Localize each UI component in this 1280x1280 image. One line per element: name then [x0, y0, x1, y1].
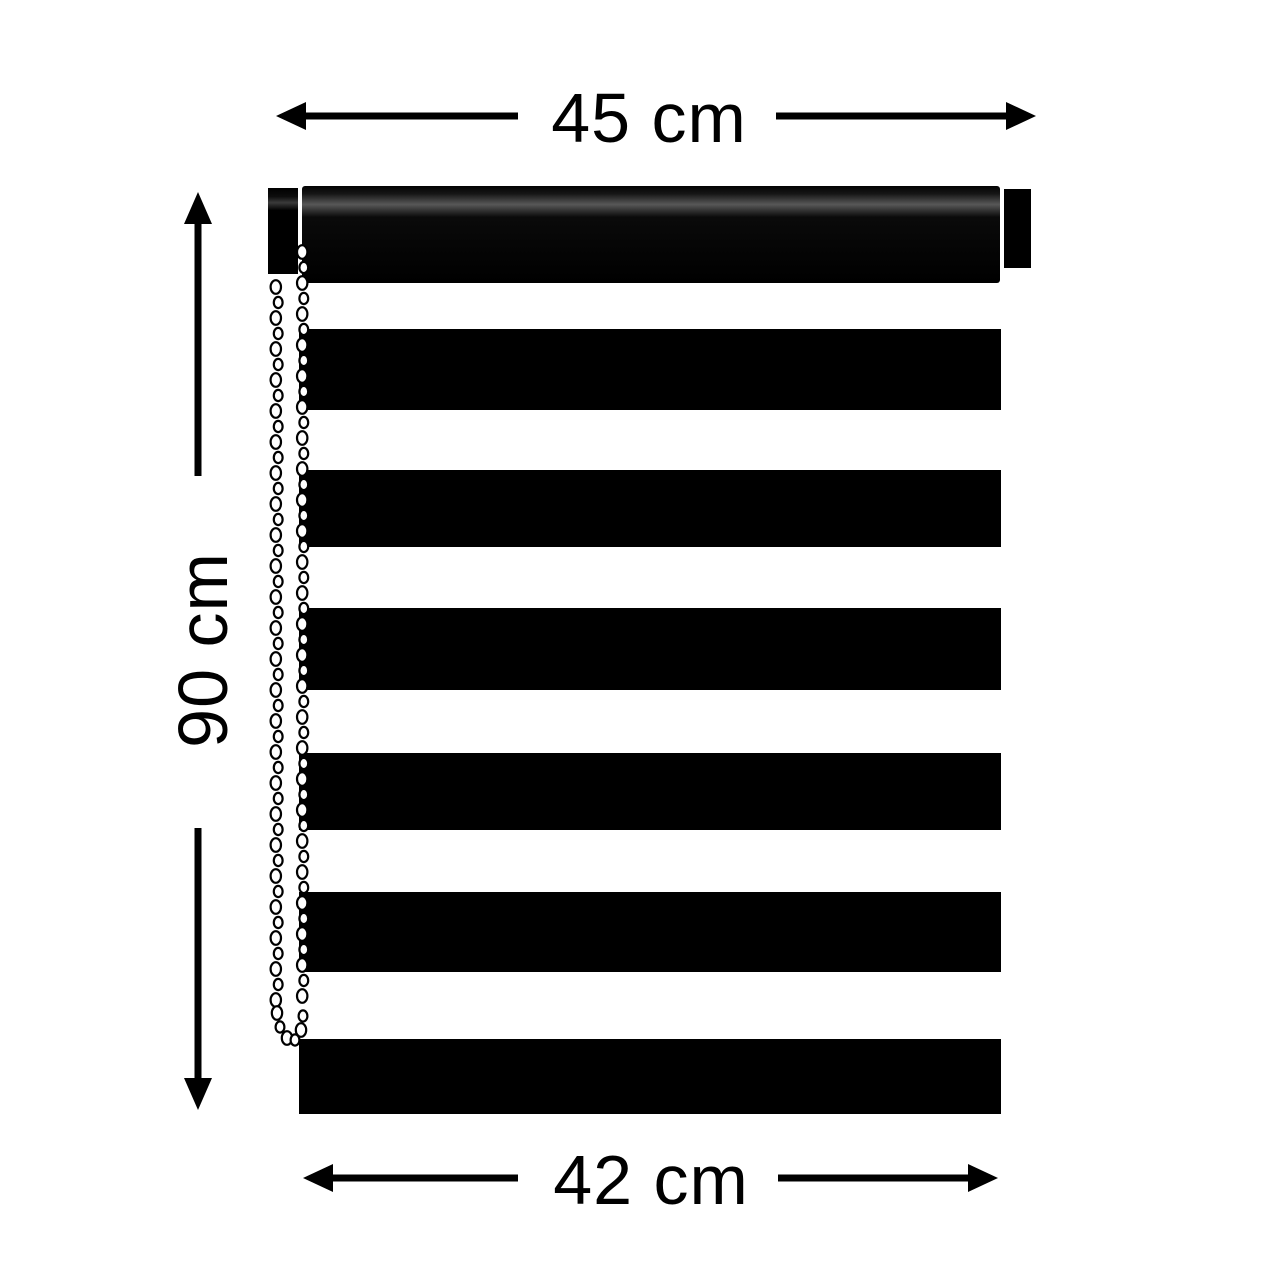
chain-bead	[274, 421, 283, 432]
chain-bead	[274, 979, 283, 990]
fabric-stripe	[299, 1039, 1001, 1114]
chain-bead	[299, 1010, 308, 1021]
chain-bead	[297, 400, 307, 414]
chain-bead	[299, 882, 308, 893]
chain-bead	[271, 404, 281, 418]
chain-bead	[297, 524, 307, 538]
fabric-stripe	[299, 892, 1001, 972]
chain-bead	[299, 975, 308, 986]
chain-bead	[271, 528, 281, 542]
chain-bead	[274, 917, 283, 928]
chain-bead	[297, 710, 307, 724]
chain-bead	[299, 944, 308, 955]
chain-bead	[271, 559, 281, 573]
side-height-dimension: 90 cm	[164, 192, 242, 1110]
chain-bead	[274, 297, 283, 308]
arrowhead-right-icon	[968, 1164, 998, 1192]
chain-bead	[299, 355, 308, 366]
left-mount-bracket	[268, 188, 298, 274]
chain-bead	[271, 435, 281, 449]
chain-bead	[274, 545, 283, 556]
chain-bead	[297, 493, 307, 507]
chain-bead	[299, 789, 308, 800]
chain-bead	[297, 834, 307, 848]
roller-blind-figure: 45 cm 90 cm 42 cm	[0, 0, 1280, 1280]
chain-bead	[274, 762, 283, 773]
product-dimension-diagram: 45 cm 90 cm 42 cm	[0, 0, 1280, 1280]
chain-bead	[297, 989, 307, 1003]
chain-bead	[299, 448, 308, 459]
chain-bead	[297, 927, 307, 941]
chain-bead	[274, 483, 283, 494]
chain-bead	[274, 359, 283, 370]
chain-bead	[297, 276, 307, 290]
chain-bead	[271, 466, 281, 480]
chain-bead	[271, 652, 281, 666]
chain-bead	[299, 665, 308, 676]
chain-bead	[271, 962, 281, 976]
chain-bead	[271, 497, 281, 511]
chain-bead	[274, 700, 283, 711]
chain-bead	[271, 838, 281, 852]
chain-bead	[297, 772, 307, 786]
chain-bead	[299, 634, 308, 645]
chain-bead	[274, 731, 283, 742]
chain-bead	[274, 328, 283, 339]
chain-bead	[297, 369, 307, 383]
chain-bead	[297, 338, 307, 352]
top-width-label: 45 cm	[551, 79, 747, 157]
chain-bead	[297, 555, 307, 569]
chain-bead	[274, 886, 283, 897]
roller-blind-headrail	[268, 186, 1031, 283]
chain-bead	[271, 900, 281, 914]
chain-bead	[274, 824, 283, 835]
bottom-width-label: 42 cm	[553, 1141, 749, 1219]
top-width-dimension: 45 cm	[276, 79, 1036, 157]
chain-bead	[299, 510, 308, 521]
chain-bead	[297, 462, 307, 476]
arrowhead-up-icon	[184, 192, 212, 224]
chain-bead	[271, 807, 281, 821]
chain-bead	[274, 576, 283, 587]
chain-bead	[271, 993, 281, 1007]
chain-bead	[274, 638, 283, 649]
chain-bead	[296, 1023, 306, 1037]
chain-bead	[271, 373, 281, 387]
chain-bead	[299, 262, 308, 273]
side-height-label: 90 cm	[164, 552, 242, 748]
chain-bead	[274, 855, 283, 866]
chain-bead	[271, 931, 281, 945]
chain-bead	[274, 390, 283, 401]
arrowhead-left-icon	[303, 1164, 333, 1192]
arrowhead-down-icon	[184, 1078, 212, 1110]
chain-bead	[297, 245, 307, 259]
chain-bead	[297, 958, 307, 972]
roller-tube	[302, 186, 1000, 283]
chain-bead	[297, 679, 307, 693]
fabric-stripe	[299, 608, 1001, 690]
chain-bead	[297, 865, 307, 879]
chain-bead	[274, 514, 283, 525]
chain-bead	[271, 621, 281, 635]
arrowhead-left-icon	[276, 102, 306, 130]
chain-bead	[272, 1006, 282, 1020]
chain-bead	[271, 280, 281, 294]
chain-bead	[299, 417, 308, 428]
chain-bead	[299, 696, 308, 707]
chain-bead	[271, 745, 281, 759]
chain-bead	[297, 617, 307, 631]
chain-bead	[274, 452, 283, 463]
bottom-width-dimension: 42 cm	[303, 1141, 998, 1219]
chain-bead	[271, 311, 281, 325]
chain-bead	[276, 1021, 285, 1032]
chain-bead	[271, 590, 281, 604]
fabric-stripes	[299, 329, 1001, 1114]
arrowhead-right-icon	[1006, 102, 1036, 130]
chain-bead	[271, 714, 281, 728]
chain-bead	[299, 851, 308, 862]
chain-bead	[274, 669, 283, 680]
chain-bead	[299, 479, 308, 490]
chain-bead	[271, 869, 281, 883]
right-end-cap	[1004, 189, 1031, 268]
chain-bead	[297, 431, 307, 445]
chain-bead	[297, 307, 307, 321]
fabric-stripe	[299, 329, 1001, 410]
chain-bead	[271, 342, 281, 356]
chain-bead	[274, 948, 283, 959]
chain-bead	[299, 603, 308, 614]
chain-bead	[299, 386, 308, 397]
chain-bead	[299, 820, 308, 831]
chain-bead	[299, 727, 308, 738]
chain-bead	[271, 683, 281, 697]
chain-bead	[297, 741, 307, 755]
chain-bead	[297, 586, 307, 600]
chain-bead	[299, 572, 308, 583]
chain-bead	[271, 776, 281, 790]
chain-bead	[299, 541, 308, 552]
chain-bead	[299, 758, 308, 769]
chain-bead	[297, 803, 307, 817]
chain-bead	[299, 293, 308, 304]
fabric-stripe	[299, 753, 1001, 830]
chain-bead	[297, 896, 307, 910]
chain-bead	[299, 913, 308, 924]
chain-bead	[297, 648, 307, 662]
fabric-stripe	[299, 470, 1001, 547]
chain-bead	[299, 324, 308, 335]
chain-bead	[274, 607, 283, 618]
chain-bead	[274, 793, 283, 804]
